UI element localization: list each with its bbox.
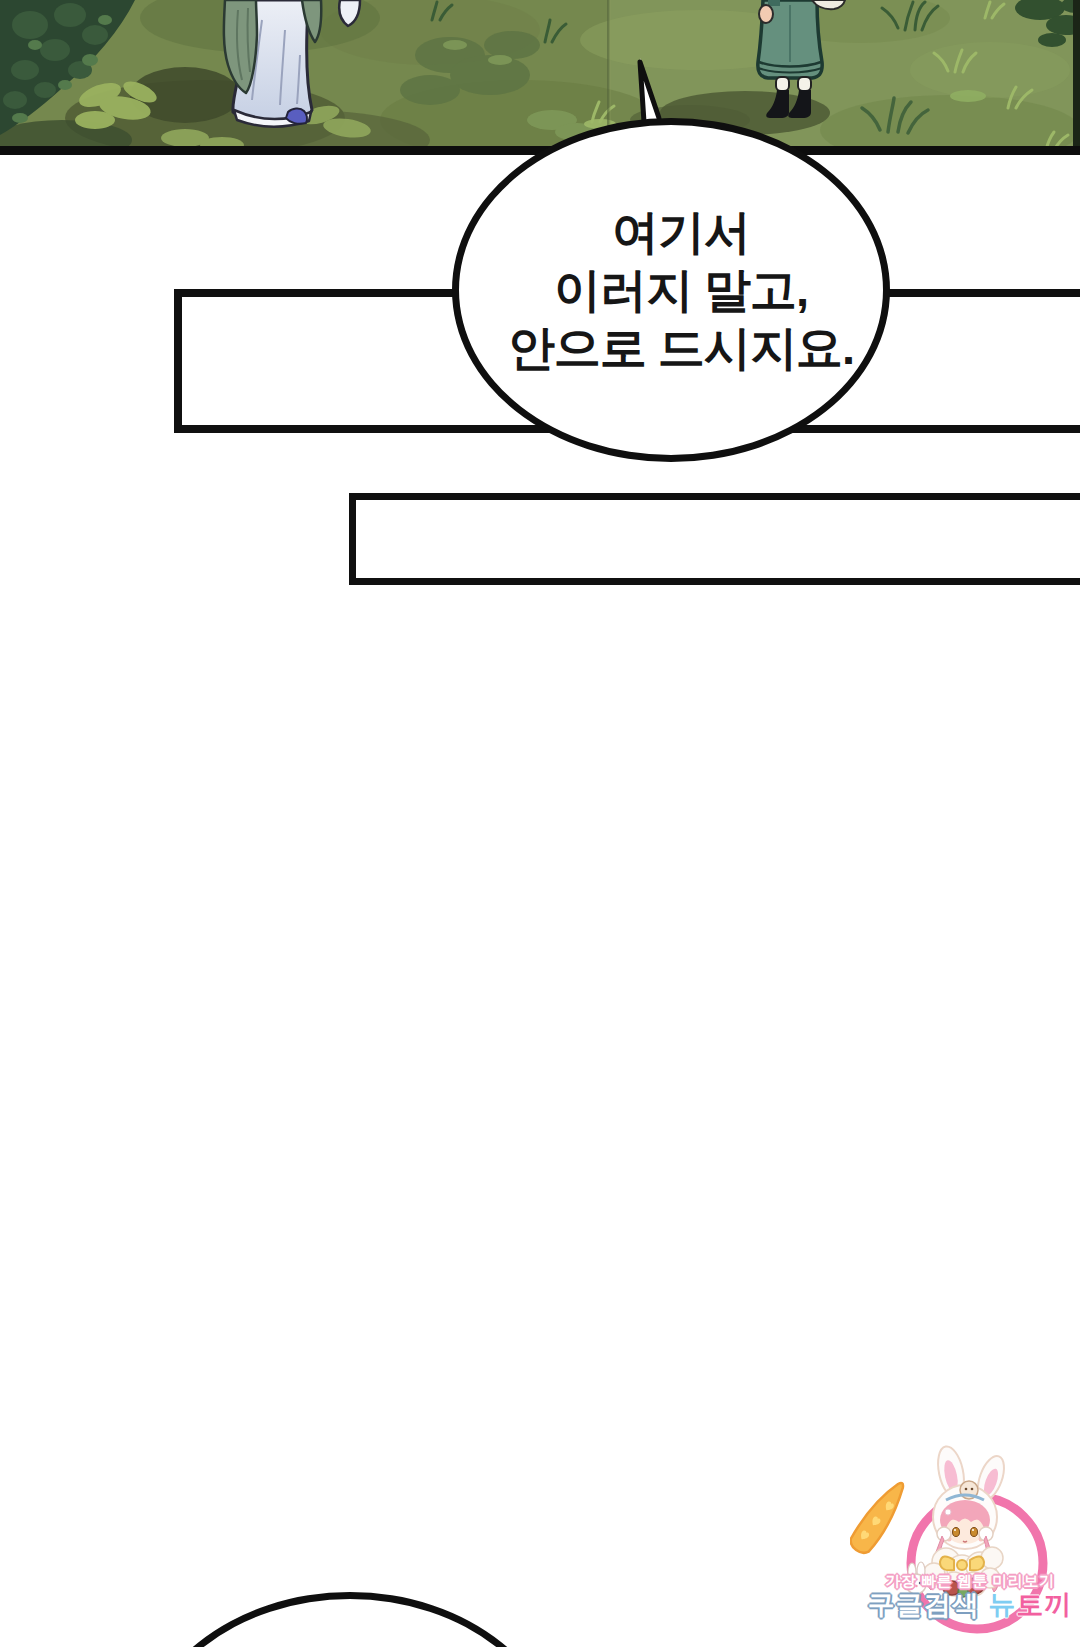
- speech-bubble-partial: [135, 1592, 565, 1647]
- watermark-search-label: 구글검색: [868, 1590, 980, 1620]
- webtoon-page: 여기서 이러지 말고, 안으로 드시지요.: [0, 0, 1080, 1647]
- comic-panel-forest-scene: [0, 0, 1080, 155]
- speech-line-2: 이러지 말고,: [508, 261, 854, 319]
- speech-line-1: 여기서: [508, 203, 854, 261]
- speech-bubble-text: 여기서 이러지 말고, 안으로 드시지요.: [508, 203, 854, 377]
- speech-line-3: 안으로 드시지요.: [508, 319, 854, 377]
- watermark: 가장 빠른 웹툰 미리보기 구글검색 뉴토끼: [850, 1440, 1080, 1647]
- watermark-brand-part2: 토끼: [1016, 1590, 1072, 1620]
- watermark-brand-part1: 뉴: [988, 1590, 1016, 1620]
- speech-bubble: 여기서 이러지 말고, 안으로 드시지요.: [452, 118, 890, 462]
- watermark-brand: 구글검색 뉴토끼: [850, 1587, 1080, 1623]
- speech-bubble-tail: [612, 54, 668, 126]
- empty-panel-2: [349, 493, 1080, 585]
